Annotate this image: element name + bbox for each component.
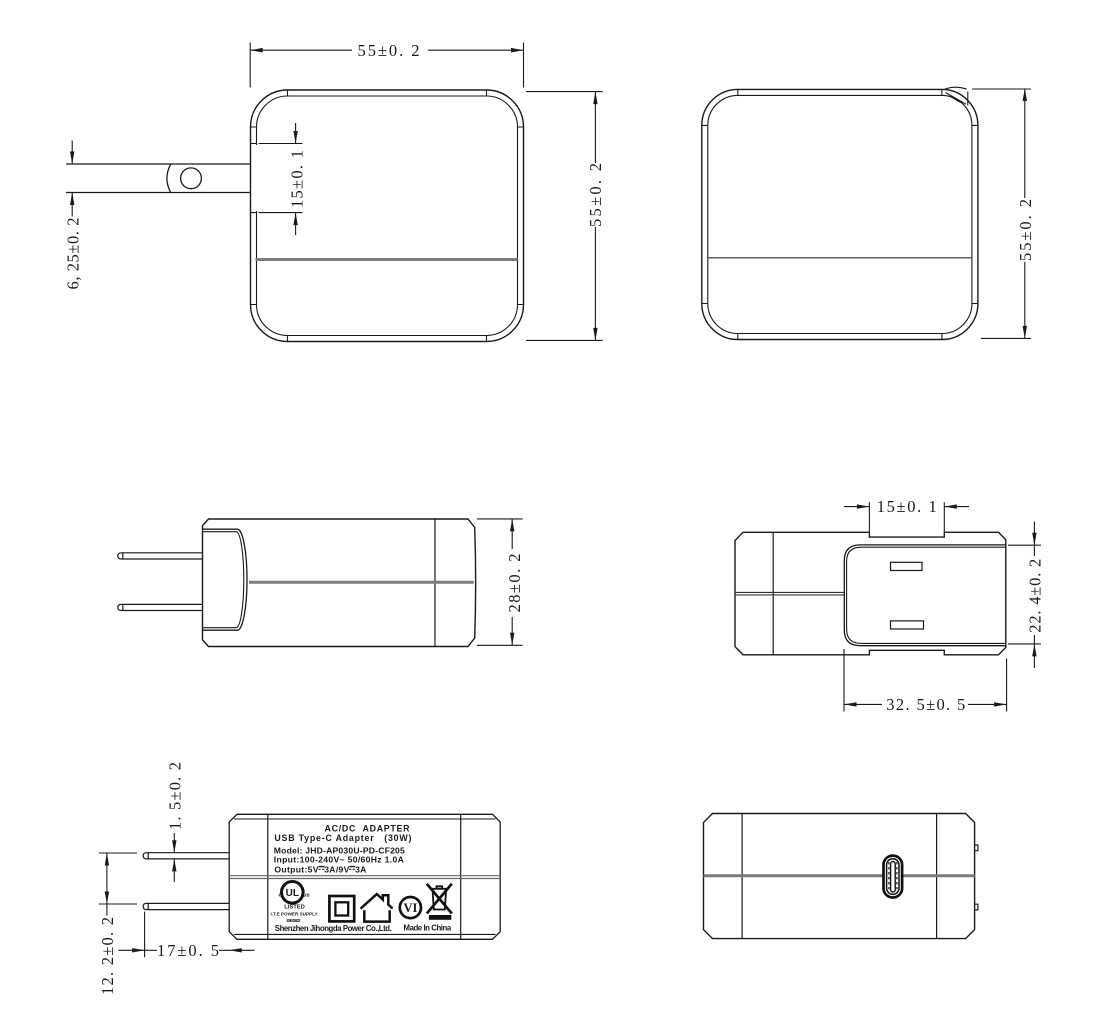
svg-text:UL: UL [286,888,299,899]
svg-text:VI: VI [403,901,417,915]
svg-text:Made In China: Made In China [404,924,452,933]
svg-text:us: us [303,893,309,899]
svg-text:c: c [278,893,281,899]
svg-text:15±0. 1: 15±0. 1 [877,497,937,516]
svg-text:12. 2±0. 2: 12. 2±0. 2 [98,917,117,995]
svg-text:32. 5±0. 5: 32. 5±0. 5 [886,695,965,714]
svg-text:LISTED: LISTED [284,904,305,910]
svg-text:Input:100-240V~ 50/60Hz 1.0A: Input:100-240V~ 50/60Hz 1.0A [274,855,404,865]
svg-text:1. 5±0. 2: 1. 5±0. 2 [166,762,185,830]
svg-text:15±0. 1: 15±0. 1 [288,150,307,208]
svg-text:22. 4±0. 2: 22. 4±0. 2 [1026,559,1045,633]
svg-text:6, 25±0. 2: 6, 25±0. 2 [64,218,83,290]
svg-text:USB Type-C Adapter (30W): USB Type-C Adapter (30W) [274,833,411,843]
svg-text:I.T.E POWER SUPPLY: I.T.E POWER SUPPLY [270,911,317,916]
svg-text:28±0. 2: 28±0. 2 [505,554,524,613]
svg-text:Shenzhen Jihongda Power Co.,Lt: Shenzhen Jihongda Power Co.,Ltd. [275,924,392,933]
svg-text:E5M1922: E5M1922 [287,918,302,923]
